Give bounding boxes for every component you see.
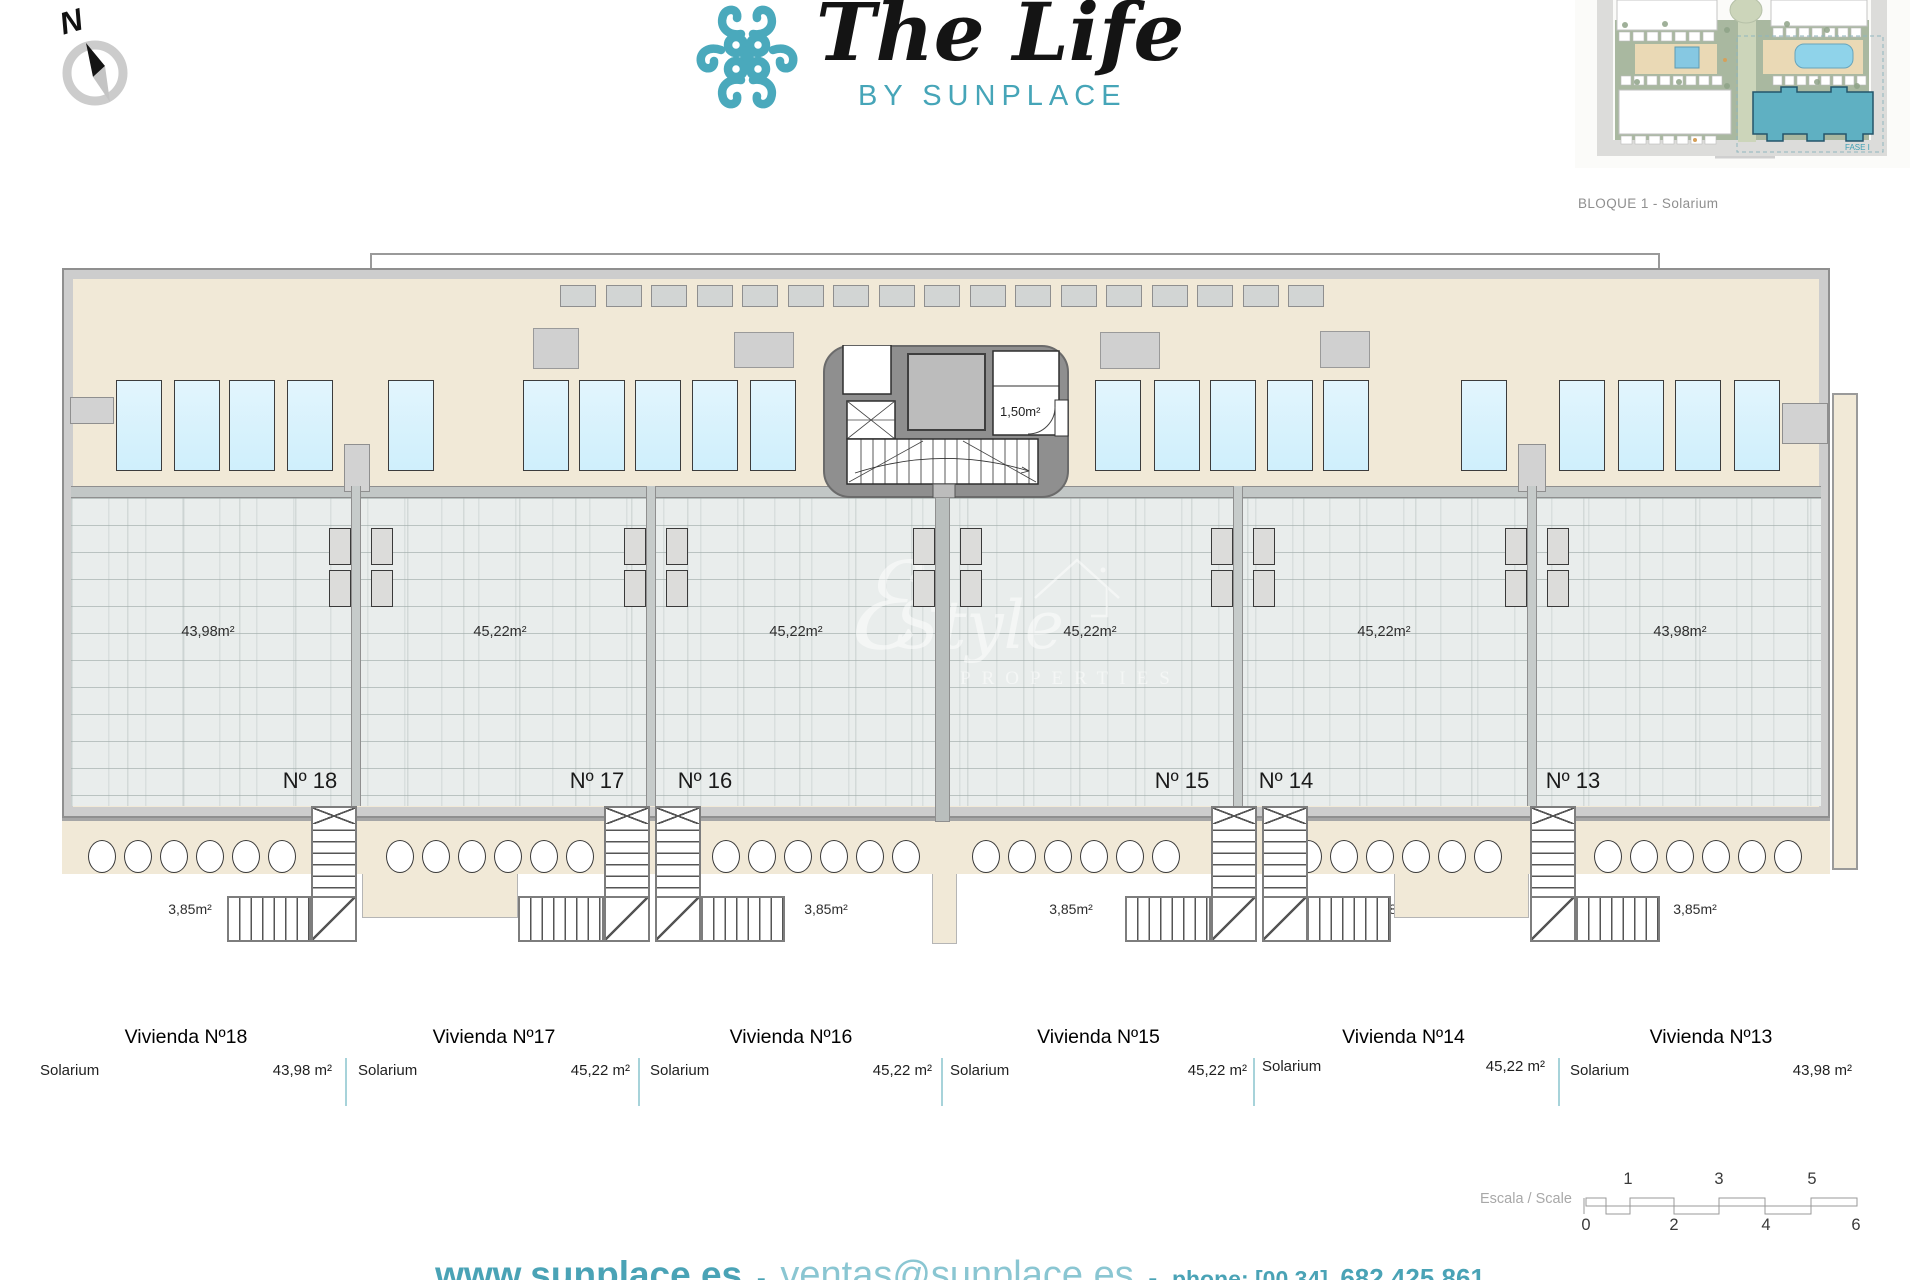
- stair-area-label-3: 3,85m²: [776, 901, 876, 917]
- stair-corner: [604, 896, 650, 942]
- table-title-v15: Vivienda Nº15: [950, 1026, 1247, 1049]
- core-stair-flight: [847, 439, 1038, 484]
- siteplan-thumbnail: FASE I: [1575, 0, 1910, 168]
- stair-area-label-6: 3,85m²: [1645, 901, 1745, 917]
- footer-phone-label: phone: [00 34]: [1172, 1266, 1328, 1280]
- table-divider: [1253, 1058, 1255, 1106]
- brand-knot-icon: [686, 2, 808, 112]
- table-title-v18: Vivienda Nº18: [40, 1026, 332, 1049]
- stair-area-label-1: 3,85m²: [140, 901, 240, 917]
- terrace-area-label-14: 45,22m²: [1329, 624, 1439, 640]
- stair-corner: [1530, 896, 1576, 942]
- table-title-v16: Vivienda Nº16: [650, 1026, 932, 1049]
- brand-subtitle: BY SUNPLACE: [858, 80, 1127, 113]
- table-row-label: Solarium: [1570, 1062, 1629, 1079]
- exterior-side-strip: [1832, 393, 1858, 870]
- table-row-v18: Solarium43,98 m²: [40, 1062, 332, 1079]
- siteplan-bloque1-highlight: [1753, 87, 1873, 141]
- siteplan-building-bottom-left: [1619, 90, 1731, 134]
- table-divider: [1558, 1058, 1560, 1106]
- siteplan-fase-label: FASE I: [1845, 143, 1870, 152]
- table-title-v13: Vivienda Nº13: [1570, 1026, 1852, 1049]
- scale-number-5: 5: [1800, 1170, 1824, 1189]
- footer-separator: -: [1138, 1262, 1167, 1280]
- table-row-value: 43,98 m²: [273, 1062, 332, 1079]
- table-title-v14: Vivienda Nº14: [1262, 1026, 1545, 1049]
- table-row-v14: Solarium45,22 m²: [1262, 1058, 1545, 1075]
- scale-number-6: 6: [1844, 1216, 1868, 1235]
- table-divider: [638, 1058, 640, 1106]
- siteplan-pool-left: [1675, 47, 1699, 68]
- table-row-v13: Solarium43,98 m²: [1570, 1062, 1852, 1079]
- scale-bar: [1578, 1196, 1863, 1216]
- stair-run: [701, 896, 785, 942]
- table-title-v17: Vivienda Nº17: [358, 1026, 630, 1049]
- core-storage-room: [843, 345, 891, 394]
- terrace-area-label-18: 43,98m²: [153, 624, 263, 640]
- stair-run: [518, 896, 604, 942]
- table-row-label: Solarium: [950, 1062, 1009, 1079]
- unit-number-13: Nº 13: [1518, 768, 1628, 794]
- table-row-label: Solarium: [358, 1062, 417, 1079]
- stair-run: [1125, 896, 1211, 942]
- stair-core: [823, 345, 1069, 498]
- walkway-strip: [62, 818, 1830, 874]
- scale-number-0: 0: [1574, 1216, 1598, 1235]
- elevator-shaft: [908, 354, 985, 430]
- terrace-area-label-17: 45,22m²: [445, 624, 555, 640]
- siteplan-pool-right: [1795, 44, 1853, 68]
- terrace-tiled-area: [71, 498, 1821, 806]
- table-row-v15: Solarium45,22 m²: [950, 1062, 1247, 1079]
- siteplan-road-left: [1597, 0, 1613, 150]
- stair-corner: [311, 896, 357, 942]
- terrace-area-label-16: 45,22m²: [741, 624, 851, 640]
- table-row-label: Solarium: [650, 1062, 709, 1079]
- stair-corner: [655, 896, 701, 942]
- table-row-label: Solarium: [1262, 1058, 1321, 1075]
- scale-number-1: 1: [1616, 1170, 1640, 1189]
- terrace-area-label-13: 43,98m²: [1625, 624, 1735, 640]
- core-aseo-room: [993, 351, 1059, 435]
- stair-area-label-2: 3,85m²: [430, 901, 530, 917]
- core-aseo-area-label: 1,50m²: [1000, 404, 1060, 419]
- table-row-value: 43,98 m²: [1793, 1062, 1852, 1079]
- stair-area-label-5: 3,85m²: [1349, 901, 1449, 917]
- footer-phone-number[interactable]: 682 425 861: [1332, 1263, 1485, 1280]
- table-row-v17: Solarium45,22 m²: [358, 1062, 630, 1079]
- footer-website-link[interactable]: www.sunplace.es: [435, 1254, 742, 1280]
- stair-corner: [1262, 896, 1308, 942]
- scale-label: Escala / Scale: [1480, 1191, 1572, 1207]
- footer-contact-bar: www.sunplace.es - ventas@sunplace.es - p…: [0, 1254, 1920, 1280]
- table-row-value: 45,22 m²: [873, 1062, 932, 1079]
- table-row-label: Solarium: [40, 1062, 99, 1079]
- table-row-v16: Solarium45,22 m²: [650, 1062, 932, 1079]
- terrace-area-label-15: 45,22m²: [1035, 624, 1145, 640]
- table-row-value: 45,22 m²: [1188, 1062, 1247, 1079]
- table-divider: [941, 1058, 943, 1106]
- unit-number-14: Nº 14: [1231, 768, 1341, 794]
- scale-number-3: 3: [1707, 1170, 1731, 1189]
- scale-number-2: 2: [1662, 1216, 1686, 1235]
- unit-number-17: Nº 17: [542, 768, 652, 794]
- table-row-value: 45,22 m²: [571, 1062, 630, 1079]
- walkway-tab: [932, 874, 957, 944]
- footer-email-link[interactable]: ventas@sunplace.es: [780, 1254, 1133, 1280]
- unit-number-18: Nº 18: [255, 768, 365, 794]
- stair-area-label-4: 3,85m²: [1021, 901, 1121, 917]
- unit-number-15: Nº 15: [1127, 768, 1237, 794]
- table-divider: [345, 1058, 347, 1106]
- compass-icon: [48, 18, 158, 128]
- table-row-value: 45,22 m²: [1486, 1058, 1545, 1075]
- scale-number-4: 4: [1754, 1216, 1778, 1235]
- footer-separator: -: [747, 1262, 776, 1280]
- siteplan-caption: BLOQUE 1 - Solarium: [1578, 196, 1838, 211]
- unit-number-16: Nº 16: [650, 768, 760, 794]
- brand-title: The Life: [816, 0, 1184, 72]
- stair-corner: [1211, 896, 1257, 942]
